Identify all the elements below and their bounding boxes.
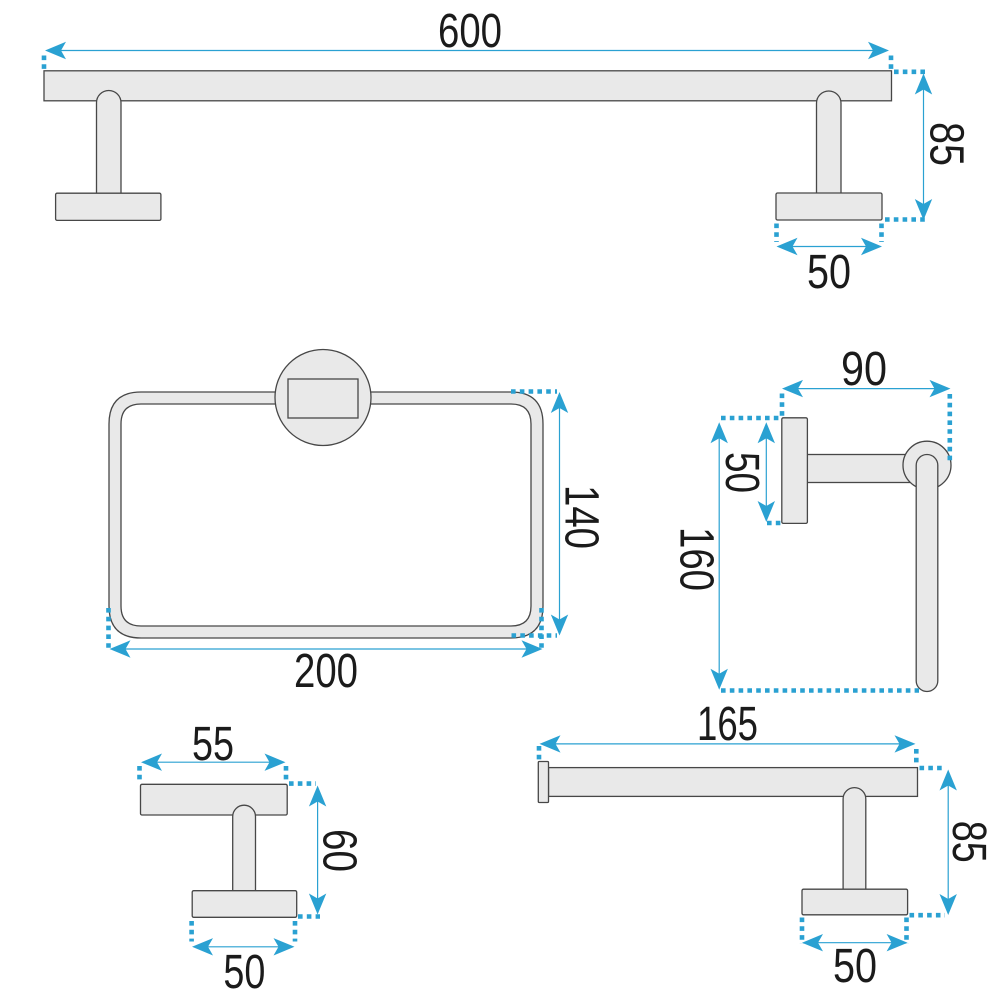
svg-text:200: 200 xyxy=(294,645,358,698)
svg-text:140: 140 xyxy=(555,485,608,549)
svg-text:90: 90 xyxy=(841,343,887,396)
svg-text:60: 60 xyxy=(312,829,365,872)
svg-text:165: 165 xyxy=(697,698,758,751)
svg-text:160: 160 xyxy=(669,527,722,591)
svg-text:85: 85 xyxy=(942,821,995,863)
svg-text:50: 50 xyxy=(833,940,877,993)
svg-text:85: 85 xyxy=(919,122,972,166)
svg-text:55: 55 xyxy=(192,718,234,771)
svg-text:50: 50 xyxy=(715,452,768,493)
svg-text:50: 50 xyxy=(807,246,851,299)
svg-text:50: 50 xyxy=(223,946,265,999)
svg-text:600: 600 xyxy=(438,5,502,58)
